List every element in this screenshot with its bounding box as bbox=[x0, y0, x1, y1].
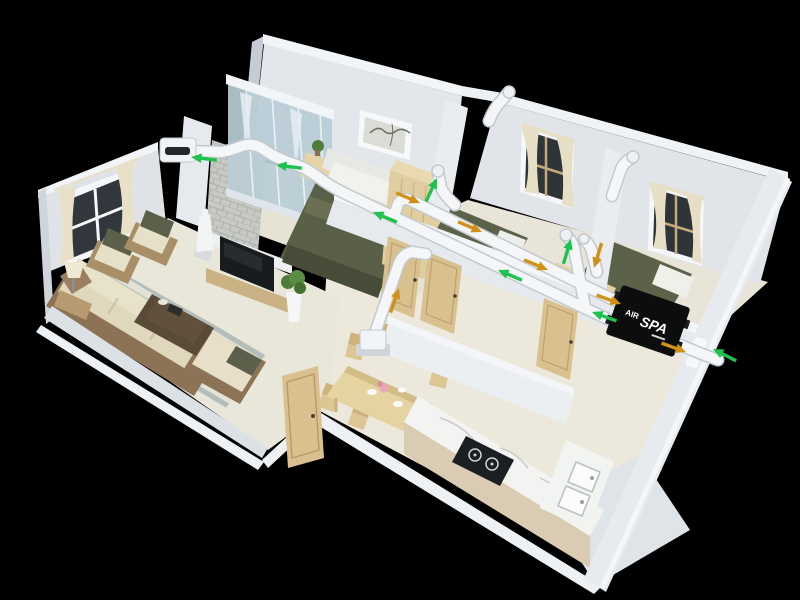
duct-cap bbox=[627, 151, 639, 163]
supply-grille-slot bbox=[165, 147, 190, 155]
entrance-door-open bbox=[282, 366, 324, 468]
duct-cap bbox=[560, 229, 572, 241]
ventilation-cutaway-scene: AIR SPA bbox=[0, 0, 800, 600]
duct-cap bbox=[579, 234, 589, 244]
duct-cap bbox=[503, 86, 515, 98]
kitchen-floor-vent bbox=[356, 330, 390, 356]
apartment-ventilation-render: AIR SPA bbox=[0, 0, 800, 600]
duct-cap bbox=[432, 165, 444, 177]
